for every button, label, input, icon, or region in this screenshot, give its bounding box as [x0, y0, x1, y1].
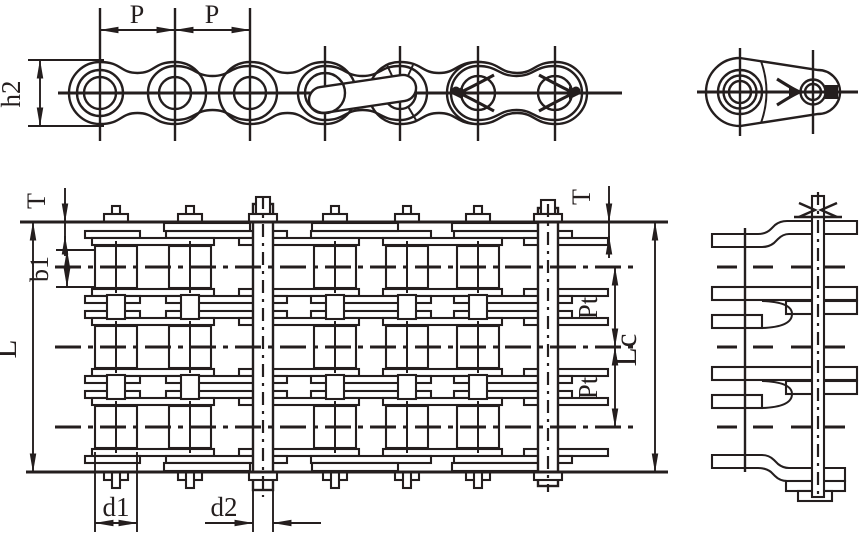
label-T-left: T [22, 193, 51, 209]
side-profile-view [712, 192, 857, 501]
cap-plate [164, 463, 250, 471]
label-b1: b1 [25, 256, 54, 282]
label-Lc: Lc [608, 334, 643, 367]
side-elevation-view: P P h2 [0, 0, 622, 141]
technical-drawing-page: P P h2 [0, 0, 864, 542]
link-end-view [697, 48, 858, 136]
cap-plate [312, 223, 398, 231]
label-d2: d2 [211, 492, 238, 522]
label-Pt-lower: Pt [573, 376, 603, 399]
top-plate [712, 221, 857, 247]
label-pitch-1: P [130, 0, 144, 29]
d2-dimension: d2 [205, 488, 321, 532]
label-h2: h2 [0, 81, 26, 108]
label-d1: d1 [103, 492, 130, 522]
roller-chain-diagram: P P h2 [0, 0, 864, 542]
plan-view: L Lc T T b1 Pt [0, 186, 668, 532]
cap-plate [164, 223, 250, 231]
label-Pt-upper: Pt [573, 296, 603, 319]
label-L: L [0, 340, 23, 359]
middle-plate-upper [712, 287, 857, 328]
cap-plate [452, 463, 538, 471]
middle-plate-lower [712, 367, 857, 408]
cap-plate [312, 463, 398, 471]
label-pitch-2: P [205, 0, 219, 29]
pin-end-tab [825, 85, 838, 99]
cap-plate [452, 223, 538, 231]
label-T-right: T [567, 189, 596, 205]
